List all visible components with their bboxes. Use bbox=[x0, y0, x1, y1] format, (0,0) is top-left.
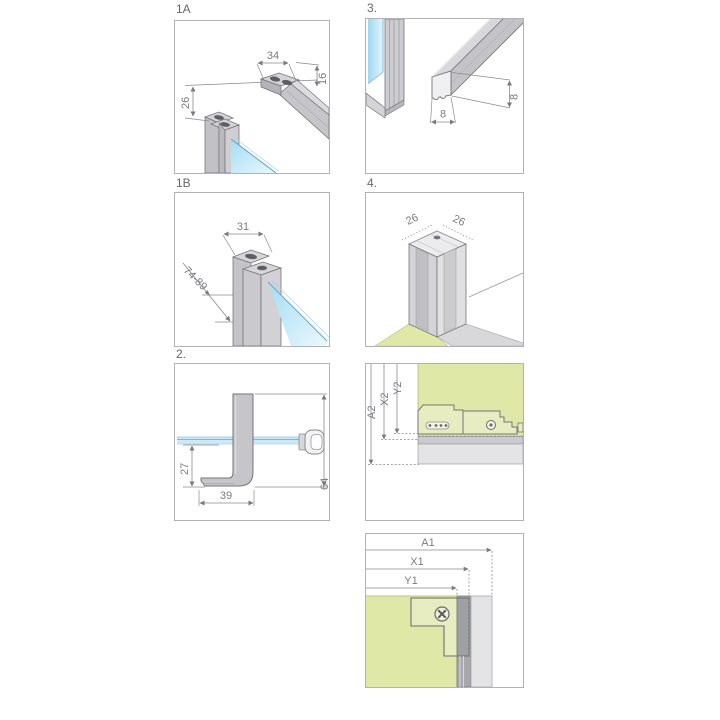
dim-label-26: 26 bbox=[180, 97, 192, 109]
dimensions: A2 X2 Y2 bbox=[366, 364, 419, 465]
panel-1a-label: 1A bbox=[176, 2, 191, 16]
panel-4: 26 26 bbox=[365, 192, 524, 347]
corner-profile bbox=[409, 231, 466, 337]
glass-panel bbox=[368, 19, 383, 84]
dim-label-x2: X2 bbox=[379, 393, 391, 406]
dim-label-16: 16 bbox=[317, 73, 329, 85]
end-cap bbox=[299, 430, 324, 454]
panel-3-drawing: 8 8 bbox=[366, 19, 523, 173]
dim-label-x1: X1 bbox=[410, 556, 423, 568]
dim-label-31: 31 bbox=[237, 221, 249, 233]
panel-2-drawing: 27 39 64 bbox=[175, 364, 329, 520]
dim-label-39: 39 bbox=[220, 490, 232, 502]
panel-2: 27 39 64 bbox=[174, 363, 330, 521]
panel-4-label: 4. bbox=[367, 176, 377, 190]
panel-5: A2 X2 Y2 bbox=[365, 363, 524, 521]
dim-label-8-height: 8 bbox=[509, 94, 521, 100]
dim-label-34: 34 bbox=[267, 50, 279, 62]
dim-label-8-width: 8 bbox=[440, 109, 446, 121]
door-profile-strip bbox=[418, 436, 523, 464]
panel-1a-drawing: 26 34 16 bbox=[175, 21, 329, 173]
panel-4-drawing: 26 26 bbox=[366, 193, 523, 346]
dim-label-range: 74-89 bbox=[181, 265, 209, 293]
panel-1b-label: 1B bbox=[176, 176, 191, 190]
panel-3: 8 8 bbox=[365, 18, 524, 174]
dim-label-64: 64 bbox=[319, 478, 329, 490]
panel-1b-drawing: 31 74-89 bbox=[175, 193, 329, 346]
panel-1b: 31 74-89 bbox=[174, 192, 330, 347]
panel-1a: 26 34 16 bbox=[174, 20, 330, 174]
panel-2-label: 2. bbox=[176, 347, 186, 361]
technical-sheet: 1A 3. 1B 4. 2. bbox=[0, 0, 720, 720]
dim-label-y2: Y2 bbox=[392, 382, 404, 395]
dim-label-a1: A1 bbox=[421, 537, 434, 549]
dim-label-a2: A2 bbox=[366, 406, 378, 419]
panel-5-drawing: A2 X2 Y2 bbox=[366, 364, 523, 520]
panel-3-label: 3. bbox=[367, 1, 377, 15]
dim-label-27: 27 bbox=[179, 463, 191, 475]
panel-6: A1 X1 Y1 bbox=[365, 533, 524, 688]
panel-6-drawing: A1 X1 Y1 bbox=[366, 534, 523, 687]
support-bar bbox=[279, 80, 329, 139]
dim-label-26-left: 26 bbox=[404, 212, 420, 228]
dim-label-y1: Y1 bbox=[404, 575, 417, 587]
dim-label-26-right: 26 bbox=[451, 213, 467, 229]
